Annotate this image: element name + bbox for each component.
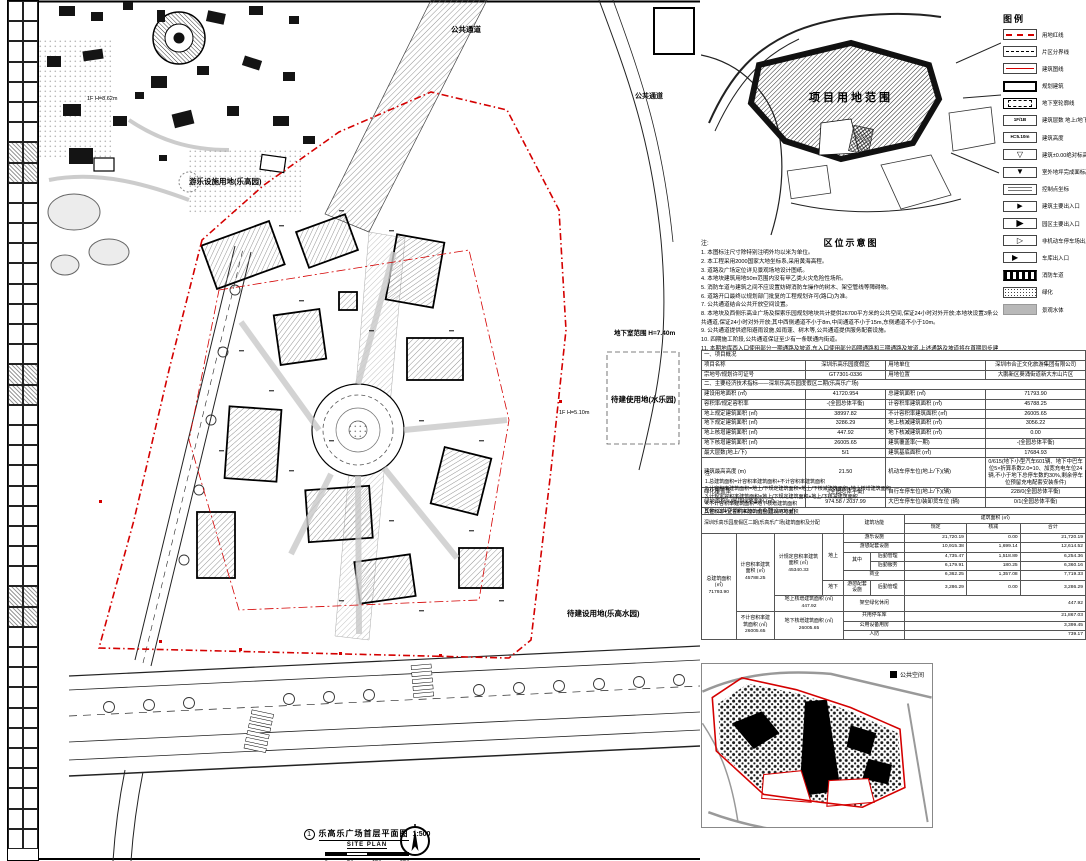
legend-label: 园区主要出入口 [1042, 220, 1080, 228]
binding-strip [7, 0, 39, 861]
label-height-b: 1F H=5.10m [559, 410, 590, 416]
binding-cell [8, 566, 23, 586]
binding-cell [8, 304, 23, 324]
legend-item: 地下室轮廓线 [1003, 98, 1086, 109]
legend-label: 建筑图线 [1042, 65, 1064, 73]
central-plaza [312, 384, 404, 476]
table-note-line: 2.计容积率建筑面积=地上/下规定建筑面积+地上/下核减建筑面积+地上核增建筑面… [705, 486, 1082, 494]
binding-cell [23, 607, 38, 627]
binding-cell [8, 364, 23, 384]
binding-cell [8, 21, 23, 41]
binding-cell [8, 667, 23, 687]
area-breakdown-table: 深圳乐高乐园度假区二期(乐高乐广场)建筑面积及分配 建筑功能 建筑面积 (㎡) … [701, 514, 1086, 640]
legend-label: 景观水体 [1042, 306, 1064, 314]
binding-cell [23, 566, 38, 586]
binding-cell [23, 284, 38, 304]
binding-cell [23, 708, 38, 728]
binding-cell [23, 768, 38, 788]
legend: 图例 用地红线片区分界线建筑图线规划建筑地下室轮廓线1F/1B建筑层数 地上/地… [1003, 12, 1086, 321]
binding-cell [23, 687, 38, 707]
table-row: 项目名称深圳乐高乐园度假区用地单位深圳市合正文化旅游集团有限公司 [702, 360, 1086, 370]
binding-cell [23, 546, 38, 566]
label-park: 游乐设施用地(乐高园) [189, 176, 262, 186]
table-row: 建设用地面积 (㎡)41720.954总建筑面积 (㎡)71793.90 [702, 390, 1086, 400]
table-row: 二、主要经济技术指标——深圳乐高乐园度假区二期(乐高乐广场) [702, 380, 1086, 390]
label-basement: 地下室范围 H=7.40m [614, 328, 675, 337]
note-line: 2. 本工程采用2000国家大地坐标系,采用黄海高程。 [701, 258, 1001, 267]
band-hatch-icon [1003, 270, 1037, 281]
tri-open-icon [1003, 149, 1037, 160]
binding-cell [23, 829, 38, 849]
legend-item: 片区分界线 [1003, 46, 1086, 57]
binding-cell [23, 62, 38, 82]
binding-cell [8, 829, 23, 849]
public-space-map: 公共空间 [701, 663, 933, 828]
binding-cell [8, 263, 23, 283]
note-line: 9. 公共通道提供遮阳避雨设施,如雨蓬、树木等,公共通道提供服务配套设施。 [701, 327, 1001, 336]
note-line: 7. 公共通道结合公共开放空间设置。 [701, 301, 1001, 310]
rect-dashed-icon [1003, 98, 1037, 109]
binding-cell [8, 526, 23, 546]
binding-cell [23, 667, 38, 687]
binding-cell [23, 304, 38, 324]
dots-icon [1003, 287, 1037, 298]
legend-item: 用地红线 [1003, 29, 1086, 40]
binding-cell [8, 768, 23, 788]
legend-label: 建筑高度 [1042, 134, 1064, 142]
binding-cell [8, 324, 23, 344]
binding-cell [23, 82, 38, 102]
plan-subtitle: SITE PLAN [347, 842, 387, 849]
binding-cell [23, 809, 38, 829]
binding-cell [8, 82, 23, 102]
binding-cell [23, 364, 38, 384]
plan-title: 乐高乐广场首层平面图 [319, 828, 409, 841]
binding-cell [8, 385, 23, 405]
arrow-solid-icon [1003, 201, 1037, 212]
binding-cell [8, 223, 23, 243]
legend-label: 建筑主要出入口 [1042, 202, 1080, 210]
binding-cell [23, 21, 38, 41]
note-line: 8. 本地块及西侧乐高业广场及探索乐园规划地块共计提供26700平方米的公共空间… [701, 310, 1001, 327]
site-plan-sheet: { "colors": {"red": "#d40000", "gray_wat… [0, 0, 1086, 861]
label-future-parcel: 待建设用地(乐高水园) [566, 608, 640, 618]
binding-cell [23, 425, 38, 445]
binding-cell [23, 183, 38, 203]
legend-label: 用地红线 [1042, 31, 1064, 39]
binding-cell [8, 62, 23, 82]
site-label: 项目用地范围 [809, 90, 893, 104]
public-space-legend: 公共空间 [890, 670, 924, 679]
binding-cell [23, 445, 38, 465]
arrow-out-icon [1003, 252, 1037, 263]
binding-cell [23, 486, 38, 506]
note-line: 4. 本地块建筑用地50m范围内没有甲乙类火灾危险性场所。 [701, 275, 1001, 284]
binding-cell [8, 405, 23, 425]
legend-item: 控制点坐标 [1003, 184, 1086, 195]
line-red-icon [1003, 63, 1037, 74]
legend-title: 图例 [1003, 12, 1086, 25]
binding-cell [8, 627, 23, 647]
tri-solid-icon [1003, 167, 1037, 178]
binding-cell [23, 142, 38, 162]
note-line: 6. 道路开口最终以规划部门批复的工程规划许可(路口)为准。 [701, 293, 1001, 302]
note-line: 10. 四期施工阶段,公共通道保证至少有一条联通内街道。 [701, 336, 1001, 345]
legend-item: 1F/1B建筑层数 地上/地下 [1003, 115, 1086, 126]
binding-cell [8, 809, 23, 829]
arrow-fat-icon [1003, 218, 1037, 229]
gray-icon [1003, 304, 1037, 315]
box-text-icon: H=5.10m [1003, 132, 1037, 143]
scale-bar: 0 5m 10m 20m [325, 852, 409, 861]
public-corridor [325, 0, 487, 640]
binding-cell [8, 1, 23, 21]
indicator-notes-title: 注: [705, 471, 1082, 479]
binding-cell [8, 728, 23, 748]
binding-cell [8, 687, 23, 707]
binding-cell [8, 445, 23, 465]
binding-cell [8, 203, 23, 223]
label-water-park: 待建使用地(水乐园) [610, 394, 676, 404]
binding-cell [8, 243, 23, 263]
legend-label: 绿化 [1042, 288, 1053, 296]
legend-label: 地下室轮廓线 [1042, 99, 1074, 107]
table-note-line: 1.总建筑面积=计容积率建筑面积+不计容积率建筑面积 [705, 479, 1082, 487]
binding-cell [8, 486, 23, 506]
binding-cell [23, 627, 38, 647]
legend-item: 园区主要出入口 [1003, 218, 1086, 229]
binding-cell [8, 788, 23, 808]
binding-cell [8, 122, 23, 142]
binding-cell [23, 647, 38, 667]
table-row: 地上核增建筑面积 (㎡)447.92地下核减建筑面积 (㎡)0.00 [702, 429, 1086, 439]
binding-cell [8, 748, 23, 768]
legend-item: 消防车道 [1003, 270, 1086, 281]
table-row: 地上规定建筑面积 (㎡)38997.82不计容积率建筑面积 (㎡)26005.6… [702, 409, 1086, 419]
binding-cell [23, 788, 38, 808]
table-row: 宗地号/规划许可证号GT7301-0336用地位置大鹏新区葵涌街道新大东山片区 [702, 370, 1086, 380]
label-height-a: 1F H=8.62m [87, 96, 118, 102]
binding-cell [23, 41, 38, 61]
area-table-title: 深圳乐高乐园度假区二期(乐高乐广场)建筑面积及分配 [702, 515, 844, 534]
legend-item: H=5.10m建筑高度 [1003, 132, 1086, 143]
binding-cell [8, 344, 23, 364]
box-text-icon: 1F/1B [1003, 115, 1037, 126]
label-corridor-2: 公共通道 [635, 91, 663, 100]
legend-item: 车库出入口 [1003, 252, 1086, 263]
table-row: 容积率/规定容积率-(全园总体平衡)计容积率建筑面积 (㎡)45788.25 [702, 399, 1086, 409]
legend-label: 建筑±0.00绝对标高 [1042, 151, 1086, 159]
legend-item: 绿化 [1003, 287, 1086, 298]
legend-label: 消防车道 [1042, 271, 1064, 279]
legend-item: 非机动车停车场出入口 [1003, 235, 1086, 246]
binding-cell [23, 243, 38, 263]
binding-cell [23, 506, 38, 526]
rect-solid-icon [1003, 81, 1037, 92]
binding-cell [8, 102, 23, 122]
public-space-swatch-icon [890, 671, 897, 678]
binding-cell [23, 324, 38, 344]
legend-item: 景观水体 [1003, 304, 1086, 315]
note-line: 5. 消防车道与建筑之间不应设置妨碍消防车操作的树木、架空管线等障碍物。 [701, 284, 1001, 293]
table-row: 地下规定建筑面积 (㎡)3286.29地上核减建筑面积 (㎡)3056.22 [702, 419, 1086, 429]
binding-cell [8, 284, 23, 304]
label-corridor: 公共通道 [451, 24, 481, 34]
binding-cell [8, 506, 23, 526]
binding-cell [8, 607, 23, 627]
table-row: 一、项目概况 [702, 351, 1086, 361]
binding-cell [8, 647, 23, 667]
binding-cell [23, 344, 38, 364]
binding-cell [23, 263, 38, 283]
binding-cell [23, 1, 38, 21]
binding-cell [23, 163, 38, 183]
location-map: 项目用地范围 区位示意图 [701, 3, 1001, 249]
table-row: 最大层数(地上/下)5/1建筑基底面积 (㎡)17684.93 [702, 448, 1086, 458]
binding-cell [8, 586, 23, 606]
arrow-open-icon [1003, 235, 1037, 246]
note-line: 1. 本图标注尺寸除特别注明外均以米为单位。 [701, 249, 1001, 258]
binding-cell [23, 203, 38, 223]
table-row: 地下核增建筑面积 (㎡)26005.65建筑覆盖率(一期)-(全园总体平衡) [702, 438, 1086, 448]
north-arrow-icon [398, 824, 432, 858]
binding-cell [23, 586, 38, 606]
site-plan-drawing: 游乐设施用地(乐高园) 公共通道 公共通道 地下室范围 H=7.40m 待建使用… [39, 0, 700, 861]
binding-cell [8, 425, 23, 445]
binding-cell [8, 546, 23, 566]
coord-icon [1003, 184, 1037, 195]
binding-cell [23, 122, 38, 142]
table-note-line: 3.计规定容积率建筑面积=地上/下规定建筑面积+地上/下核减建筑面积 [705, 494, 1082, 502]
line-black-dash-icon [1003, 46, 1037, 57]
legend-item: 建筑主要出入口 [1003, 201, 1086, 212]
binding-cell [23, 465, 38, 485]
binding-cell [23, 405, 38, 425]
legend-item: 建筑图线 [1003, 63, 1086, 74]
binding-cell [8, 708, 23, 728]
table-note-line: 4.不计容积率建筑面积=地下核增建筑面积 [705, 501, 1082, 509]
binding-cell [23, 385, 38, 405]
notes-title: 注: [701, 240, 1001, 249]
figure-number: 1 [304, 829, 315, 840]
binding-cell [23, 526, 38, 546]
legend-label: 规划建筑 [1042, 82, 1064, 90]
binding-cell [23, 748, 38, 768]
binding-cell [23, 728, 38, 748]
note-line: 3. 道路及广场定位详见景观场地设计图纸。 [701, 267, 1001, 276]
legend-item: 室外地坪完成面标高 [1003, 167, 1086, 178]
legend-label: 建筑层数 地上/地下 [1042, 116, 1086, 124]
location-map-drawing: 项目用地范围 [701, 3, 1001, 237]
legend-item: 建筑±0.00绝对标高 [1003, 149, 1086, 160]
binding-cell [23, 223, 38, 243]
line-red-dash-icon [1003, 29, 1037, 40]
public-space-drawing [702, 664, 932, 827]
binding-cell [8, 142, 23, 162]
legend-label: 控制点坐标 [1042, 185, 1069, 193]
legend-label: 室外地坪完成面标高 [1042, 168, 1086, 176]
binding-cell [23, 102, 38, 122]
legend-item: 规划建筑 [1003, 81, 1086, 92]
legend-label: 车库出入口 [1042, 254, 1069, 262]
binding-cell [8, 163, 23, 183]
binding-cell [8, 465, 23, 485]
binding-cell [8, 41, 23, 61]
legend-label: 片区分界线 [1042, 48, 1069, 56]
legend-label: 非机动车停车场出入口 [1042, 237, 1086, 245]
binding-cell [8, 183, 23, 203]
